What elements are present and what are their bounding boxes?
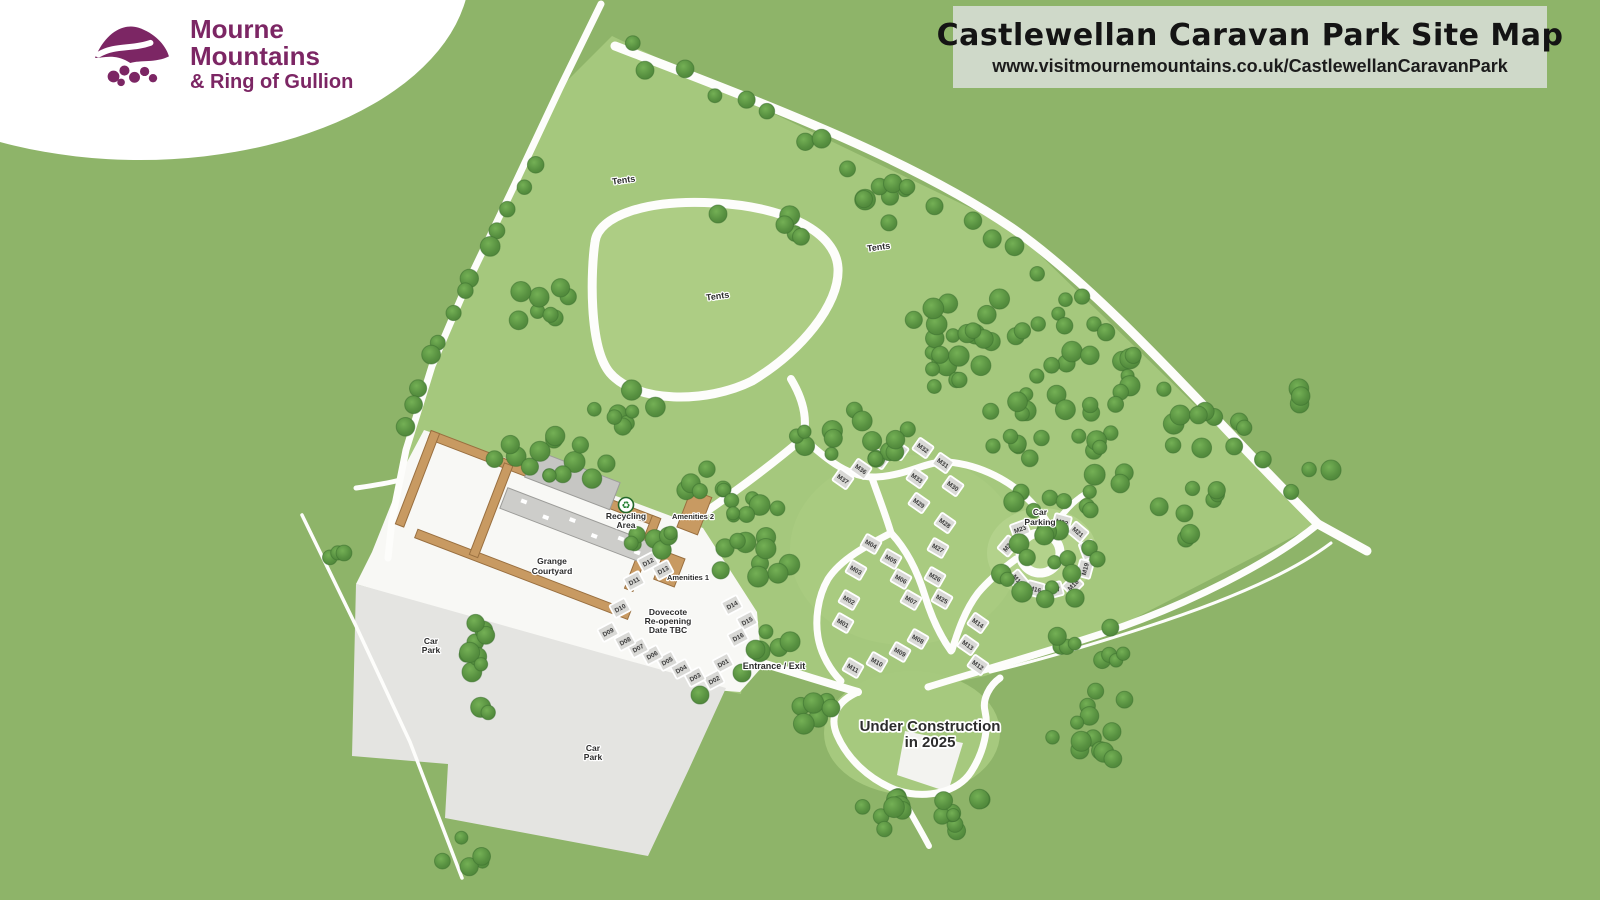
tree [530,441,550,461]
label-line: Amenities 1 [667,573,709,582]
tree [455,831,468,844]
tree [691,686,709,704]
tree [1165,438,1181,454]
tree [970,789,990,809]
tree [1084,464,1105,485]
label-entrance-exit: Entrance / Exit [743,661,806,671]
tree [1103,723,1121,741]
tree [1255,451,1272,468]
label-line: Date TBC [649,625,687,635]
tree [692,484,707,499]
tree [884,174,903,193]
logo-line-1: Mourne [190,16,353,43]
tree [965,323,981,339]
label-grange-courtyard: GrangeCourtyard [532,556,573,576]
tree [759,625,773,639]
tree [983,230,1001,248]
label-line: Under Construction [860,718,1001,735]
tree [822,699,840,717]
tree [625,36,640,51]
tree [405,396,423,414]
tree [572,437,588,453]
tree [551,279,569,297]
tree [1030,267,1045,282]
label-dovecote: DovecoteRe-openingDate TBC [645,607,692,635]
label-line: Amenities 2 [672,512,714,521]
label-amenities-2: Amenities 2 [672,512,714,521]
logo-text: Mourne Mountains & Ring of Gullion [190,16,353,93]
tree [1157,382,1171,396]
tree [1003,429,1018,444]
tree [474,658,487,671]
tree [1150,498,1168,516]
label-line: Car [1033,507,1048,517]
tree [626,405,639,418]
tree [509,311,528,330]
tree [1055,400,1075,420]
tree [724,493,739,508]
tree [971,356,991,376]
logo-line-3: & Ring of Gullion [190,72,353,93]
tree [435,853,451,869]
tree [923,298,944,319]
tree [1116,691,1133,708]
tree [1042,490,1058,506]
tree [989,289,1009,309]
tree [825,447,838,460]
tree [1072,429,1086,443]
tree [480,237,500,257]
tree [952,372,967,387]
tree [336,545,352,561]
tree [607,410,622,425]
tree [1036,590,1054,608]
tree [1321,460,1341,480]
tree [1284,484,1299,499]
tree [797,133,814,150]
tree [543,307,558,322]
tree [598,455,615,472]
recycling-icon: ♻ [619,498,634,513]
tree [1019,549,1036,566]
tree [1056,318,1073,335]
tree [396,418,415,437]
tree [1192,438,1212,458]
tree [881,215,897,231]
site-map-page: D01D02D03D04D05D06D07D08D09D10D11D12D13D… [0,0,1600,900]
tree [1170,405,1190,425]
tree [1102,619,1119,636]
tree [621,380,641,400]
tree [1031,317,1046,332]
label-line: Park [422,645,441,655]
tree [983,403,999,419]
tree [712,562,729,579]
tree [926,362,940,376]
label-amenities-1: Amenities 1 [667,573,709,582]
tree [527,157,544,174]
tree [1035,526,1054,545]
tree [1048,627,1066,645]
label-line: Entrance / Exit [743,661,806,671]
tree [517,180,532,195]
tree [410,380,427,397]
tree [554,466,571,483]
tree [1237,420,1252,435]
tree [780,632,800,652]
tree [1302,462,1317,477]
label-car-park-west: CarPark [422,636,441,655]
tree [1185,481,1199,495]
tree [1030,369,1044,383]
map-url: www.visitmournemountains.co.uk/Castlewel… [992,56,1508,77]
tree [949,346,970,367]
tree [855,800,870,815]
label-car-park-south: CarPark [584,743,603,762]
tree [1000,572,1014,586]
tree [986,439,1000,453]
tree [886,430,905,449]
tree [852,411,872,431]
tree [1083,485,1096,498]
tree [1004,492,1024,512]
tree [1097,324,1114,341]
tree [1066,589,1084,607]
tree [1093,440,1107,454]
tree [1074,289,1089,304]
tree [803,693,823,713]
tree [709,205,727,223]
tree [1062,341,1083,362]
tree [1082,397,1098,413]
tree [926,198,943,215]
tree [877,821,892,836]
tree [446,305,461,320]
tree [1291,387,1310,406]
mourne-logo-mark [88,16,176,100]
tree [708,89,722,103]
tree [1012,581,1033,602]
label-line: Courtyard [532,566,573,576]
tree [467,614,485,632]
tree [458,283,474,299]
tree [1111,474,1130,493]
tree [624,536,638,550]
tree [1176,505,1193,522]
tree [500,201,516,217]
tree [768,563,788,583]
tree [1081,346,1100,365]
tree [964,212,982,230]
tree [884,797,905,818]
tree [646,397,666,417]
tree [1181,524,1200,543]
tree [1108,396,1124,412]
tree [1034,430,1050,446]
tree [587,402,601,416]
tree [1117,647,1130,660]
tree [863,432,882,451]
tree [748,566,769,587]
tree [1056,494,1071,509]
tree [1044,357,1060,373]
tree [543,469,556,482]
tree [1071,716,1084,729]
tree [1071,731,1091,751]
tree [978,305,997,324]
label-line: in 2025 [905,734,956,751]
tree [1068,637,1081,650]
tree [1226,438,1243,455]
tree [1046,731,1060,745]
tree [1208,482,1225,499]
tree [855,191,872,208]
tree [776,216,794,234]
tree [676,60,694,78]
tree [738,91,755,108]
tree [546,426,565,445]
tree [481,705,495,719]
tree [699,461,716,478]
tree [824,429,842,447]
label-line: Grange [537,556,567,566]
tree [1104,750,1122,768]
map-title: Castlewellan Caravan Park Site Map [937,18,1564,53]
title-banner: Castlewellan Caravan Park Site Map www.v… [953,6,1547,88]
tree [1014,323,1030,339]
tree [1088,683,1104,699]
tree [473,848,491,866]
tree [840,161,856,177]
tree [798,425,811,438]
tree [1190,406,1208,424]
tree [1090,552,1106,568]
tree [1063,564,1081,582]
tree [1021,450,1038,467]
tree [746,640,765,659]
tree [927,380,941,394]
tree [935,792,953,810]
tree [905,311,922,328]
tree [529,287,549,307]
tree [727,507,740,520]
tree [636,61,654,79]
tree [664,526,677,539]
tree [793,713,814,734]
tree [759,103,775,119]
recycling-point: ♻ [619,498,634,513]
label-line: Park [584,752,603,762]
tree [899,179,915,195]
tree [1083,502,1099,518]
tree [947,809,960,822]
recycling-icon-glyph: ♻ [622,501,631,512]
tree [868,451,883,466]
label-line: Parking [1024,517,1055,527]
tree [1059,293,1073,307]
tree [932,346,949,363]
tree [422,345,441,364]
tree [812,129,831,148]
tree [1125,347,1141,363]
logo-line-2: Mountains [190,43,353,70]
tree [486,451,503,468]
tree [501,435,519,453]
tree [511,282,531,302]
label-line: Area [617,520,636,530]
tree [1005,237,1024,256]
tree [770,501,785,516]
tree [793,228,810,245]
tree [1008,392,1028,412]
tree [756,539,776,559]
tree [582,469,602,489]
tree [730,533,746,549]
tree [739,507,755,523]
